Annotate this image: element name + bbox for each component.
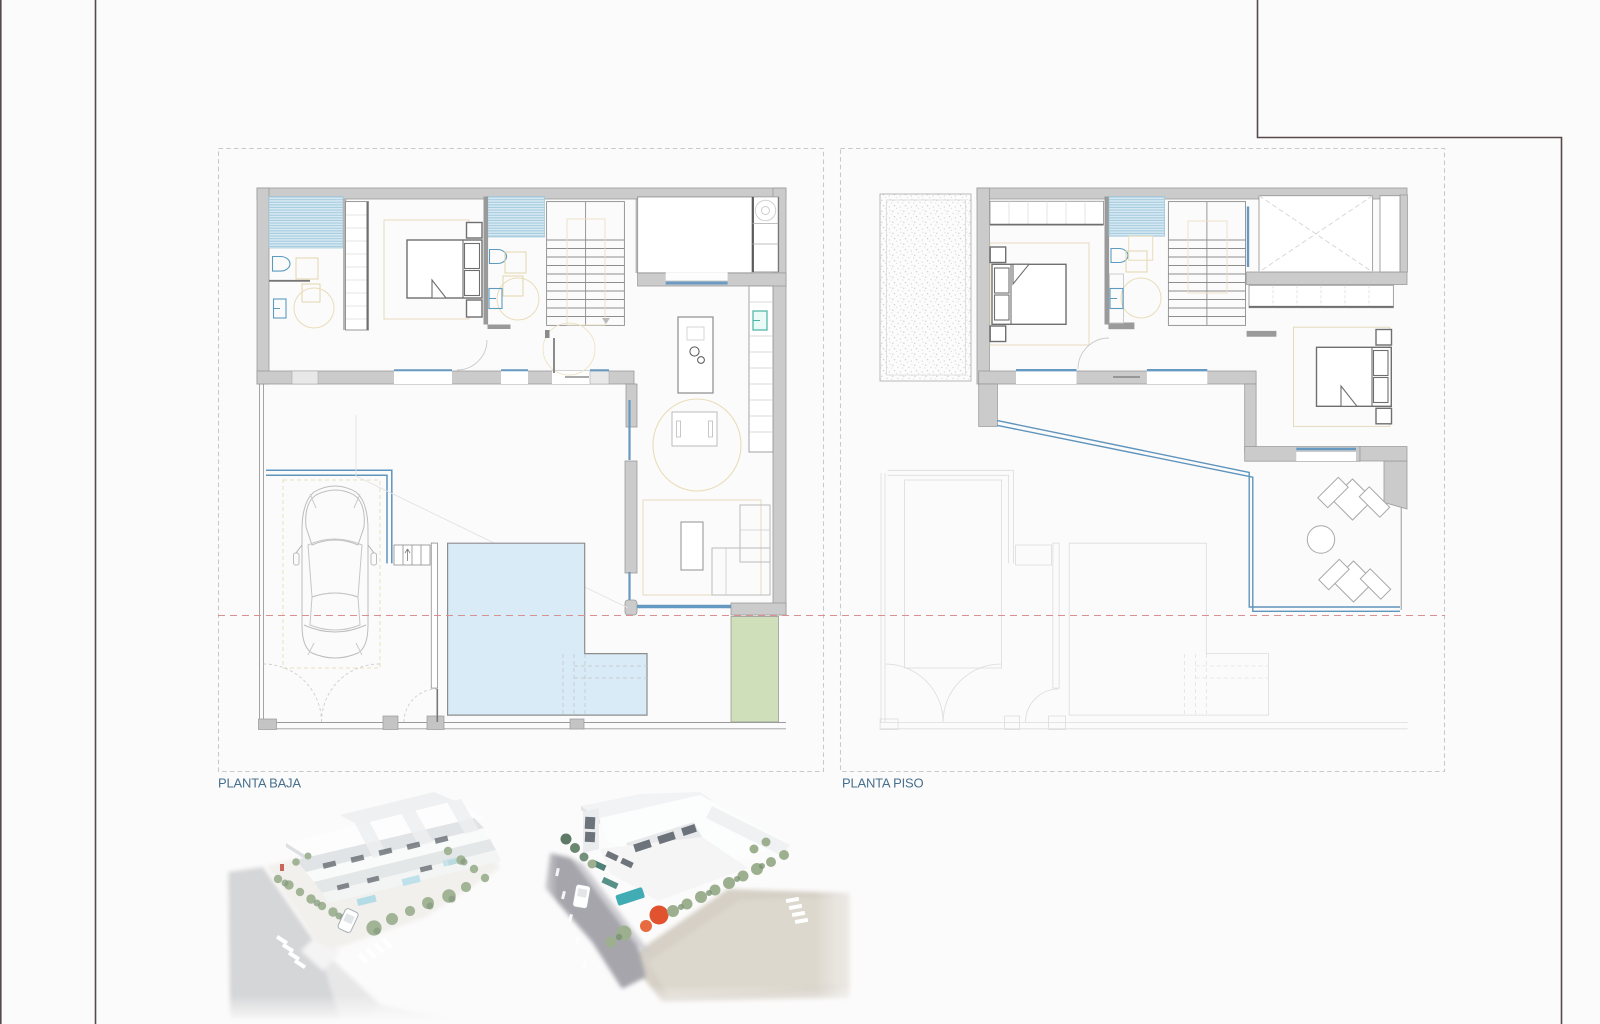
svg-text:PLANTA PISO: PLANTA PISO [842, 776, 923, 791]
svg-text:PLANTA BAJA: PLANTA BAJA [218, 776, 301, 791]
